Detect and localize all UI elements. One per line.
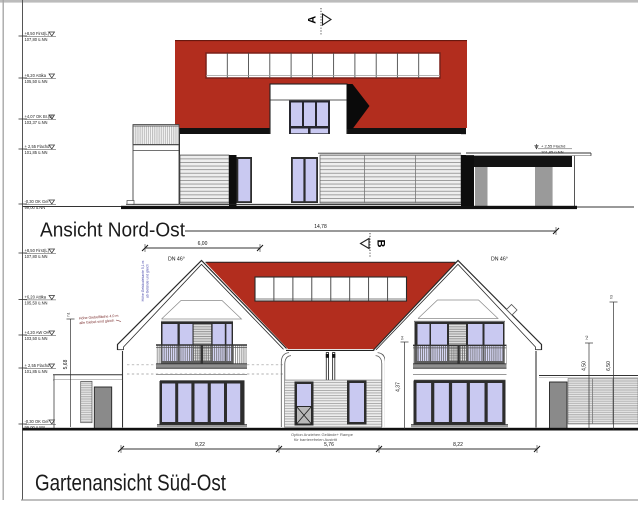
svg-text:+4,20 AW OH: +4,20 AW OH [25,330,50,335]
svg-text:ab Gelände und gleich: ab Gelände und gleich [146,264,150,298]
svg-text:107,80 ü.NN: 107,80 ü.NN [25,37,48,42]
svg-text:101,85 ü.NN: 101,85 ü.NN [541,149,564,154]
svg-text:B: B [375,240,387,248]
svg-text:Gartenansicht Süd-Ost: Gartenansicht Süd-Ost [35,470,226,496]
svg-text:+6,20 Attika: +6,20 Attika [25,294,47,299]
svg-text:+ 2,55 Flachd: + 2,55 Flachd [25,363,51,368]
svg-text:+8,50 First(L): +8,50 First(L) [25,248,50,253]
svg-text:99,00 ü.NN: 99,00 ü.NN [25,205,46,210]
svg-text:4,37: 4,37 [396,382,402,392]
svg-text:105,50 ü.NN: 105,50 ü.NN [25,79,48,84]
svg-text:A: A [307,16,319,24]
svg-text:14,78: 14,78 [314,224,327,230]
svg-text:h1: h1 [67,313,71,317]
svg-text:-0,30 OK Gel: -0,30 OK Gel [25,199,49,204]
svg-text:101,85 ü.NN: 101,85 ü.NN [25,150,48,155]
svg-text:Höhe Gebäudekante 5,1 m: Höhe Gebäudekante 5,1 m [141,260,145,301]
svg-text:99,00 ü.NN: 99,00 ü.NN [25,425,46,430]
svg-text:h4: h4 [401,336,405,340]
svg-text:h2: h2 [585,336,589,340]
svg-text:-0,30 OK Gel: -0,30 OK Gel [25,419,49,424]
svg-text:4,50: 4,50 [582,361,588,371]
svg-text:8,22: 8,22 [195,442,205,448]
svg-text:5,68: 5,68 [63,359,69,369]
svg-text:8,22: 8,22 [453,442,463,448]
svg-text:107,80 ü.NN: 107,80 ü.NN [25,254,48,259]
svg-text:DN 46°: DN 46° [168,257,185,263]
svg-text:6,00: 6,00 [198,241,208,247]
svg-text:101,85 ü.NN: 101,85 ü.NN [25,369,48,374]
svg-text:105,50 ü.NN: 105,50 ü.NN [25,301,48,306]
svg-text:6,50: 6,50 [606,361,612,371]
svg-text:103,37 ü.NN: 103,37 ü.NN [25,120,48,125]
svg-text:+ 2,55 Flachd: + 2,55 Flachd [25,144,51,149]
svg-text:103,50 ü.NN: 103,50 ü.NN [25,336,48,341]
svg-text:DN 46°: DN 46° [491,257,508,263]
svg-text:5,76: 5,76 [324,442,334,448]
svg-text:Ansicht Nord-Ost: Ansicht Nord-Ost [40,220,185,242]
svg-text:+8,50 First(L): +8,50 First(L) [25,31,50,36]
svg-text:+ 2,55 Flachd: + 2,55 Flachd [541,144,565,149]
svg-text:+6,20 Attika: +6,20 Attika [25,73,47,78]
svg-text:h3: h3 [610,295,614,299]
